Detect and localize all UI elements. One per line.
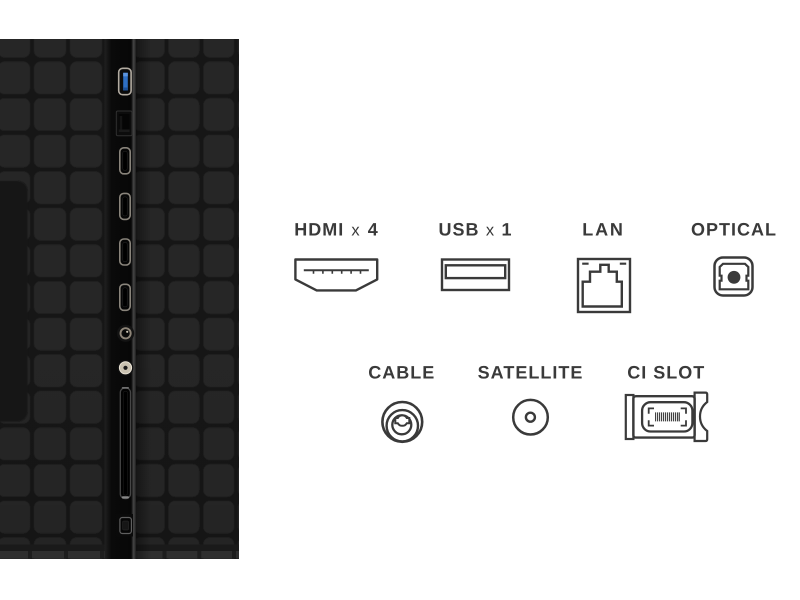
svg-text:LAN: LAN — [582, 220, 624, 240]
svg-text:HDMI x 4: HDMI x 4 — [294, 220, 378, 240]
svg-text:USB x 1: USB x 1 — [438, 220, 512, 240]
svg-text:OPTICAL: OPTICAL — [691, 220, 777, 240]
svg-text:CABLE: CABLE — [368, 363, 435, 383]
svg-text:SATELLITE: SATELLITE — [478, 363, 584, 383]
svg-text:CI SLOT: CI SLOT — [627, 363, 705, 383]
